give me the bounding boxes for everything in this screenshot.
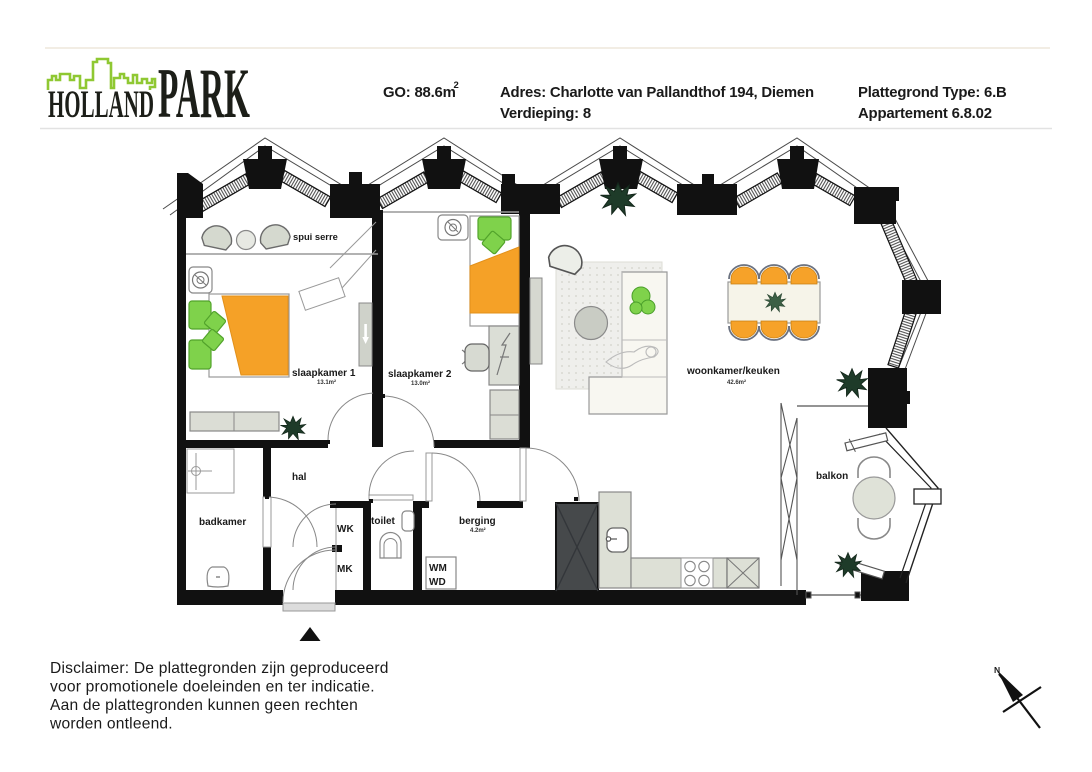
- svg-text:toilet: toilet: [371, 516, 396, 527]
- svg-text:Adres: Charlotte van Pallandth: Adres: Charlotte van Pallandthof 194, Di…: [500, 85, 814, 101]
- svg-text:MK: MK: [337, 564, 353, 575]
- svg-text:WM: WM: [429, 563, 447, 574]
- svg-text:Disclaimer: De plattegronden z: Disclaimer: De plattegronden zijn geprod…: [50, 660, 389, 677]
- svg-text:woonkamer/keuken: woonkamer/keuken: [686, 366, 780, 377]
- svg-text:42.6m²: 42.6m²: [727, 379, 746, 386]
- svg-text:2: 2: [454, 80, 459, 91]
- svg-text:slaapkamer 1: slaapkamer 1: [292, 368, 356, 379]
- svg-text:Verdieping: 8: Verdieping: 8: [500, 106, 591, 122]
- svg-text:voor promotionele doeleinden e: voor promotionele doeleinden en ter indi…: [50, 679, 375, 696]
- svg-text:Aan de plattegronden kunnen ge: Aan de plattegronden kunnen geen rechten: [50, 697, 358, 714]
- svg-text:PARK: PARK: [158, 55, 250, 133]
- svg-text:WK: WK: [337, 524, 354, 535]
- svg-text:GO: 88.6m: GO: 88.6m: [383, 85, 456, 101]
- svg-text:Plattegrond Type: 6.B: Plattegrond Type: 6.B: [858, 85, 1007, 101]
- svg-text:WD: WD: [429, 577, 446, 588]
- svg-text:balkon: balkon: [816, 471, 848, 482]
- svg-text:HOLLAND: HOLLAND: [48, 83, 154, 126]
- svg-text:badkamer: badkamer: [199, 517, 246, 528]
- svg-text:13.0m²: 13.0m²: [411, 380, 430, 387]
- svg-text:berging: berging: [459, 516, 496, 527]
- svg-text:N: N: [994, 665, 1000, 675]
- svg-text:spui serre: spui serre: [293, 231, 338, 242]
- svg-text:hal: hal: [292, 472, 307, 483]
- svg-text:13.1m²: 13.1m²: [317, 379, 336, 386]
- svg-text:4.2m²: 4.2m²: [470, 527, 486, 534]
- svg-text:slaapkamer 2: slaapkamer 2: [388, 369, 452, 380]
- svg-text:worden ontleend.: worden ontleend.: [49, 716, 173, 733]
- svg-text:Appartement 6.8.02: Appartement 6.8.02: [858, 106, 992, 122]
